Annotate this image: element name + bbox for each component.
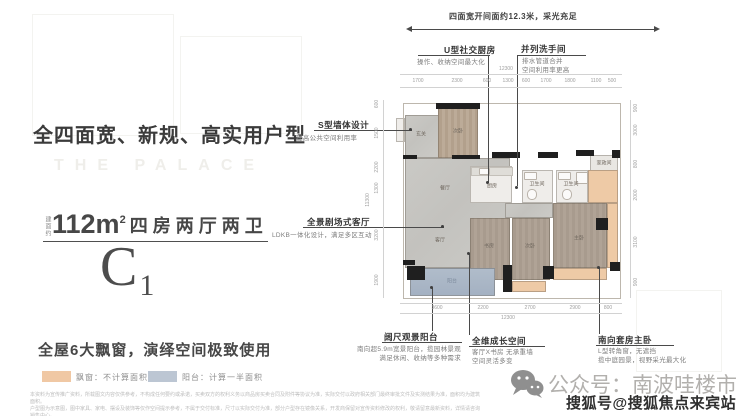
callout-ukitchen-underline <box>418 55 490 56</box>
wall-segment <box>543 266 554 279</box>
dim-right-3: 2000 <box>633 189 639 200</box>
flyer-canvas: 全四面宽、新规、高实用户型 THE PALACE 建面约 112m 2 四房两厅… <box>0 0 740 416</box>
dim-bottom-2: 2700 <box>524 305 535 311</box>
dim-left-0: 600 <box>374 100 380 108</box>
room-corridor <box>505 203 553 218</box>
dim-bottom-total: 12300 <box>501 315 515 321</box>
dim-top-2: 600 <box>483 78 491 84</box>
room-label-living: 客厅 <box>435 237 445 244</box>
dim-line <box>630 100 631 298</box>
dim-line <box>400 303 622 304</box>
legend-balcony-label: 阳台：计算一半面积 <box>182 372 263 383</box>
room-label-utility: 家政间 <box>596 160 611 167</box>
wall-segment <box>492 152 520 158</box>
callout-master-underline <box>596 345 674 346</box>
bay-window-corner <box>588 170 618 203</box>
area-prefix: 建面约 <box>43 216 50 237</box>
callout-bath-title: 并列洗手间 <box>521 43 566 55</box>
dim-top-1: 2300 <box>451 78 462 84</box>
dim-top-0: 1700 <box>412 78 423 84</box>
top-span-label: 四面宽开间面约12.3米，采光充足 <box>449 11 577 22</box>
callout-growth-sub2: 空间灵活多变 <box>472 357 513 366</box>
bath2-sink <box>558 172 571 180</box>
dim-bottom-4: 800 <box>604 305 612 311</box>
dim-top-5: 1700 <box>540 78 551 84</box>
dim-top-6: 1800 <box>564 78 575 84</box>
legend-bay-swatch <box>42 371 71 382</box>
arrowhead-right-icon <box>654 26 660 32</box>
dim-right-0: 900 <box>633 104 639 112</box>
room-label-dining: 餐厅 <box>440 185 450 192</box>
dim-left-1: 1500 <box>374 127 380 138</box>
dim-line <box>400 74 622 75</box>
callout-swall-line <box>314 130 412 131</box>
top-span-arrow <box>412 29 654 30</box>
room-label-bed2: 次卧 <box>525 243 535 250</box>
callout-theater-line <box>303 227 444 228</box>
room-label-balcony: 阳台 <box>447 278 457 285</box>
dim-bottom-1: 2200 <box>477 305 488 311</box>
callout-balcony-underline <box>382 342 462 343</box>
room-label-study: 书房 <box>484 243 494 250</box>
callout-growth-sub1: 客厅X书房 无承重墙 <box>472 348 533 357</box>
bath1-sink <box>524 172 537 180</box>
dim-right-1: 3000 <box>633 124 639 135</box>
brand-watermark: THE PALACE <box>54 157 265 175</box>
area-value: 112m <box>52 211 120 237</box>
unit-number: 1 <box>139 269 154 302</box>
dim-left-3: 1300 <box>374 182 380 193</box>
callout-balcony-sub: 南向超5.9m宽景阳台，揽园林景观 满足休闲、收纳等多种需求 <box>333 345 461 363</box>
unit-code: C1 <box>100 239 154 295</box>
room-label-entry: 玄关 <box>416 131 426 138</box>
leader-line <box>599 268 600 334</box>
dim-top-8: 500 <box>608 78 616 84</box>
dim-line <box>383 100 384 298</box>
dim-bottom-0: 3600 <box>431 305 442 311</box>
room-label-bath2: 卫生间 <box>563 181 578 188</box>
bay-window-bed2 <box>512 281 546 292</box>
area-superscript: 2 <box>120 214 126 226</box>
wall-segment <box>576 150 594 156</box>
leader-dot <box>486 181 489 184</box>
leader-line <box>469 254 470 335</box>
callout-swall-sub: 提高公共空间利用率 <box>296 134 357 143</box>
wall-segment <box>538 152 558 158</box>
dim-top-4: 600 <box>522 78 530 84</box>
legend-bay-label: 飘窗：不计算面积 <box>76 372 148 383</box>
room-label-master: 主卧 <box>574 235 584 242</box>
dim-top-3: 1300 <box>502 78 513 84</box>
callout-bath-underline <box>518 55 586 56</box>
background-deco-box <box>32 14 174 136</box>
room-label-bath1: 卫生间 <box>529 181 544 188</box>
wall-segment <box>436 103 480 109</box>
dim-top-7: 1100 <box>591 78 602 84</box>
callout-growth-underline <box>469 346 545 347</box>
sohu-watermark: 搜狐号@搜狐焦点来宾站 <box>566 392 736 413</box>
dim-line <box>400 313 622 314</box>
room-label-bed-tl: 次卧 <box>453 128 463 135</box>
wall-segment <box>407 266 425 280</box>
disclaimer-line2: 户型图为示意图，图中家具、家电、摆设及装饰等仅作空间提示参考，不属于交付标准，尺… <box>30 406 482 416</box>
leader-dot <box>430 286 433 289</box>
leader-dot <box>597 266 600 269</box>
feature-line: 全屋6大飘窗，演绎空间极致使用 <box>38 339 271 360</box>
bath1-toilet <box>527 189 537 200</box>
dim-right-4: 3100 <box>633 236 639 247</box>
dim-left-total: 11300 <box>365 193 371 207</box>
dim-left-5: 1900 <box>374 274 380 285</box>
dim-right-5: 900 <box>633 278 639 286</box>
bay-window-right <box>607 203 618 268</box>
dim-right-2: 800 <box>633 160 639 168</box>
wall-segment <box>612 150 620 158</box>
callout-balcony-sub1: 南向超5.9m宽景阳台，揽园林景观 <box>333 345 461 354</box>
wall-segment <box>452 155 480 159</box>
wall-segment <box>610 262 620 271</box>
callout-ukitchen-sub: 操作、收纳空间最大化 <box>417 58 485 67</box>
kitchen-counter <box>471 167 513 176</box>
callout-master-sub2: 揽中庭园景，视野采光最大化 <box>598 356 686 365</box>
leader-dot <box>515 186 518 189</box>
wechat-icon <box>510 369 544 399</box>
leader-dot <box>467 252 470 255</box>
bath2-toilet <box>562 189 572 200</box>
wall-segment <box>403 155 417 159</box>
dim-left-4: 3200 <box>374 229 380 240</box>
wall-segment <box>596 218 608 230</box>
leader-dot <box>409 128 412 131</box>
callout-theater-sub: LDKB一体化设计，满足多区互动 <box>272 231 372 240</box>
unit-letter: C <box>100 236 137 298</box>
wall-segment <box>403 260 415 265</box>
callout-master-sub1: L型转角窗，无遮挡 <box>598 347 656 356</box>
dim-bottom-3: 2900 <box>569 305 580 311</box>
disclaimer: 本资料为宣传推广资料，所载图文内容仅供参考，不构成任何要约或承诺，买卖双方的权利… <box>30 392 482 416</box>
area-rooms: 四房两厅两卫 <box>130 215 268 237</box>
arrowhead-left-icon <box>406 26 412 32</box>
dim-top-total: 12300 <box>499 66 513 72</box>
callout-balcony-sub2: 满足休闲、收纳等多种需求 <box>333 354 461 363</box>
headline: 全四面宽、新规、高实用户型 <box>33 119 306 148</box>
wall-segment <box>503 265 512 292</box>
legend-balcony-swatch <box>148 371 177 382</box>
leader-dot <box>441 225 444 228</box>
area-line: 建面约 112m 2 四房两厅两卫 <box>43 211 268 242</box>
callout-bath-sub1: 排水管道合并 <box>522 57 563 66</box>
disclaimer-line1: 本资料为宣传推广资料，所载图文内容仅供参考，不构成任何要约或承诺，买卖双方的权利… <box>30 392 482 406</box>
dim-line <box>400 87 622 88</box>
dim-left-2: 2200 <box>374 161 380 172</box>
